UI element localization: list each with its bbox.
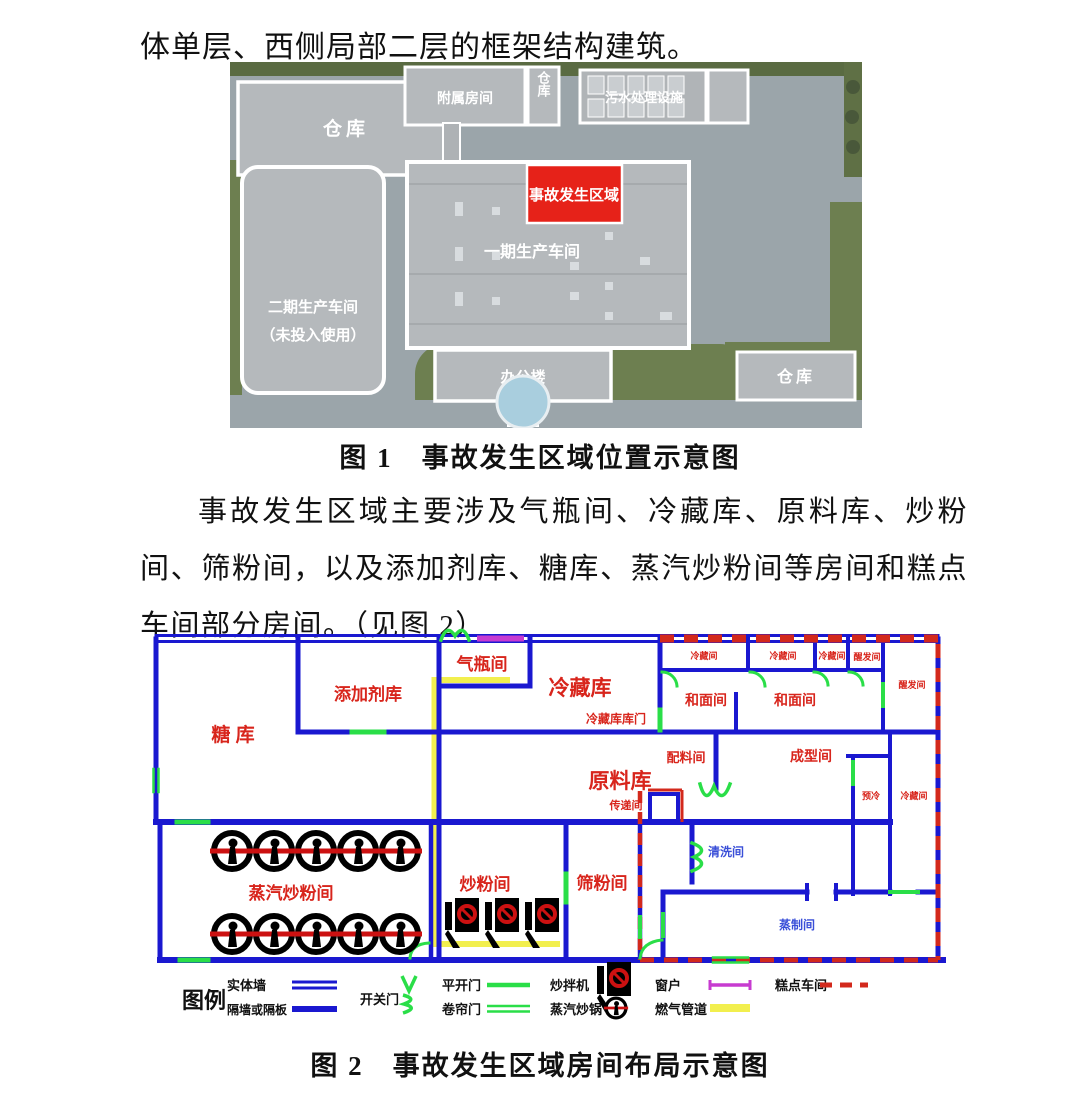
legend-steam-pot-icon — [604, 998, 628, 1018]
label-phase2-line2: （未投入使用） — [260, 326, 365, 344]
room-chaofenjian: 炒粉间 — [460, 874, 511, 894]
legend-title: 图例 — [182, 988, 226, 1013]
room-hemianjian-2: 和面间 — [774, 692, 816, 708]
label-accident-area: 事故发生区域 — [529, 186, 619, 204]
floor-plan-figure: 气瓶间 添加剂库 冷藏库 糖 库 原料库 冷藏库库门 配料间 传递间 和面间 和… — [148, 626, 965, 1040]
figure2-caption: 图 2 事故发生区域房间布局示意图 — [0, 1044, 1080, 1083]
label-annex: 附属房间 — [437, 90, 493, 106]
building-warehouse-bottomright: 仓库 — [737, 352, 855, 400]
room-yuanliaoku: 原料库 — [589, 769, 652, 793]
legend-pastry-label: 糕点车间 — [774, 978, 827, 993]
document-page: 体单层、西侧局部二层的框架结构建筑。 仓库 附属房间 仓库 — [0, 0, 1080, 1093]
room-chengxingjian: 成型间 — [790, 748, 832, 764]
legend: 图例 实体墙 隔墙或隔板 开关门 平开门 卷帘门 炒拌机 蒸汽炒锅 — [182, 962, 868, 1018]
room-lengcangjian-2: 冷藏间 — [769, 650, 796, 661]
pastry-workshop-boundary — [640, 639, 938, 961]
room-tangku: 糖 库 — [211, 723, 254, 746]
accident-area-box: 事故发生区域 — [527, 165, 622, 223]
legend-swing-door-label: 平开门 — [442, 978, 481, 993]
room-chuandijian: 传递间 — [609, 798, 643, 812]
legend-fry-mixer-label: 炒拌机 — [550, 978, 589, 993]
room-yuleng: 预冷 — [862, 790, 880, 801]
room-qipingjian: 气瓶间 — [456, 654, 508, 674]
room-peiliaojian: 配料间 — [666, 750, 705, 765]
label-warehouse-top: 仓库 — [536, 70, 552, 98]
room-hemianjian-1: 和面间 — [685, 692, 727, 708]
legend-solid-wall-label: 实体墙 — [227, 978, 266, 993]
steam-pots-row1 — [210, 833, 422, 869]
figure1-caption: 图 1 事故发生区域位置示意图 — [0, 436, 1080, 475]
label-warehouse-br: 仓库 — [776, 367, 815, 386]
room-tianjiajiku: 添加剂库 — [334, 684, 402, 704]
legend-roller-door-label: 卷帘门 — [442, 1002, 481, 1017]
label-sewage: 污水处理设施 — [605, 90, 683, 105]
building-warehouse-top: 仓库 — [528, 67, 559, 125]
building-sewage-plant: 污水处理设施 — [580, 70, 748, 123]
room-lengcangjian-1: 冷藏间 — [690, 650, 717, 661]
legend-steam-pot-label: 蒸汽炒锅 — [550, 1002, 602, 1017]
room-lengcangjian-3: 冷藏间 — [818, 650, 845, 661]
room-xingfajian-2: 醒发间 — [898, 679, 925, 690]
legend-gas-pipe-label: 燃气管道 — [655, 1002, 707, 1017]
legend-window-swatch — [710, 980, 750, 990]
room-lengcangku: 冷藏库 — [549, 676, 612, 700]
building-phase2: 二期生产车间 （未投入使用） — [242, 167, 384, 393]
room-qingxijian: 清洗间 — [708, 844, 744, 859]
fry-mixers — [445, 898, 559, 948]
legend-switch-door-label: 开关门 — [360, 992, 399, 1007]
legend-window-label: 窗户 — [655, 978, 681, 993]
label-phase1: 一期生产车间 — [484, 242, 580, 261]
room-zhengqichaofenjian: 蒸汽炒粉间 — [249, 883, 334, 903]
label-warehouse-tl: 仓库 — [322, 117, 369, 140]
room-lengcangjian-4: 冷藏间 — [900, 790, 927, 801]
label-phase2-line1: 二期生产车间 — [268, 298, 358, 316]
room-xingfajian-1: 醒发间 — [853, 651, 880, 662]
room-lengcangkukumen: 冷藏库库门 — [586, 711, 646, 726]
fountain — [497, 376, 549, 428]
room-zhengzhijian: 蒸制间 — [779, 917, 815, 932]
legend-switch-door-symbols — [402, 976, 416, 1013]
room-shaifenjian: 筛粉间 — [577, 873, 628, 893]
legend-partition-label: 隔墙或隔板 — [227, 1002, 288, 1017]
steam-pots-row2 — [210, 916, 422, 952]
site-map-figure: 仓库 附属房间 仓库 污水处理设施 二期生产车间 （未投入使用） — [230, 62, 862, 428]
intro-text: 体单层、西侧局部二层的框架结构建筑。 — [140, 22, 1020, 66]
